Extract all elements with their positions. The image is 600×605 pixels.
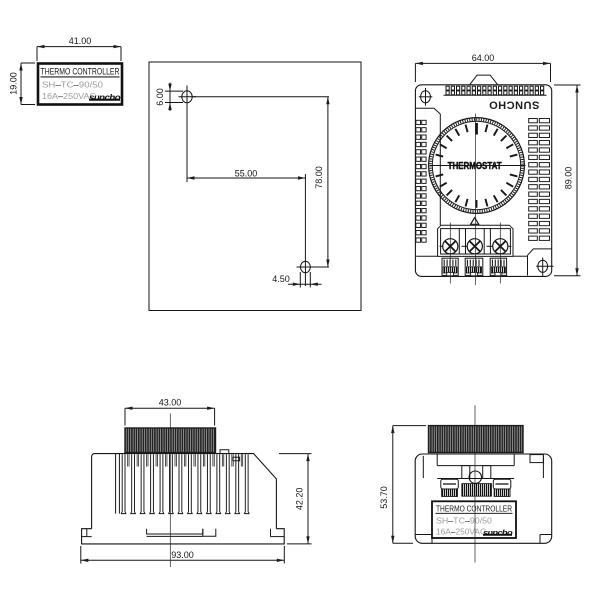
- svg-text:THERMO CONTROLLER: THERMO CONTROLLER: [436, 504, 512, 513]
- svg-text:41.00: 41.00: [69, 36, 92, 46]
- svg-text:55.00: 55.00: [235, 168, 258, 178]
- svg-text:64.00: 64.00: [472, 53, 495, 63]
- svg-text:sᴜnchᴏ: sᴜnchᴏ: [89, 92, 121, 102]
- svg-text:93.00: 93.00: [171, 550, 194, 560]
- svg-text:53.70: 53.70: [379, 486, 389, 509]
- svg-text:16A–250VAC: 16A–250VAC: [42, 91, 96, 101]
- svg-text:6.00: 6.00: [155, 88, 165, 106]
- svg-text:16A–250VAC: 16A–250VAC: [436, 528, 486, 537]
- svg-text:SH–TC–90/50: SH–TC–90/50: [42, 80, 103, 90]
- svg-text:THERMOSTAT: THERMOSTAT: [448, 160, 502, 172]
- svg-text:4.50: 4.50: [272, 274, 290, 284]
- svg-text:42.20: 42.20: [294, 488, 304, 511]
- svg-text:SH–TC–90/50: SH–TC–90/50: [436, 517, 493, 526]
- svg-text:19.00: 19.00: [9, 72, 19, 95]
- svg-text:78.00: 78.00: [314, 166, 324, 189]
- svg-text:89.00: 89.00: [564, 167, 574, 190]
- svg-text:SUNCHO: SUNCHO: [489, 99, 540, 111]
- svg-text:43.00: 43.00: [159, 398, 182, 408]
- svg-text:sᴜnchᴏ: sᴜnchᴏ: [483, 528, 513, 537]
- svg-text:THERMO CONTROLLER: THERMO CONTROLLER: [41, 66, 120, 77]
